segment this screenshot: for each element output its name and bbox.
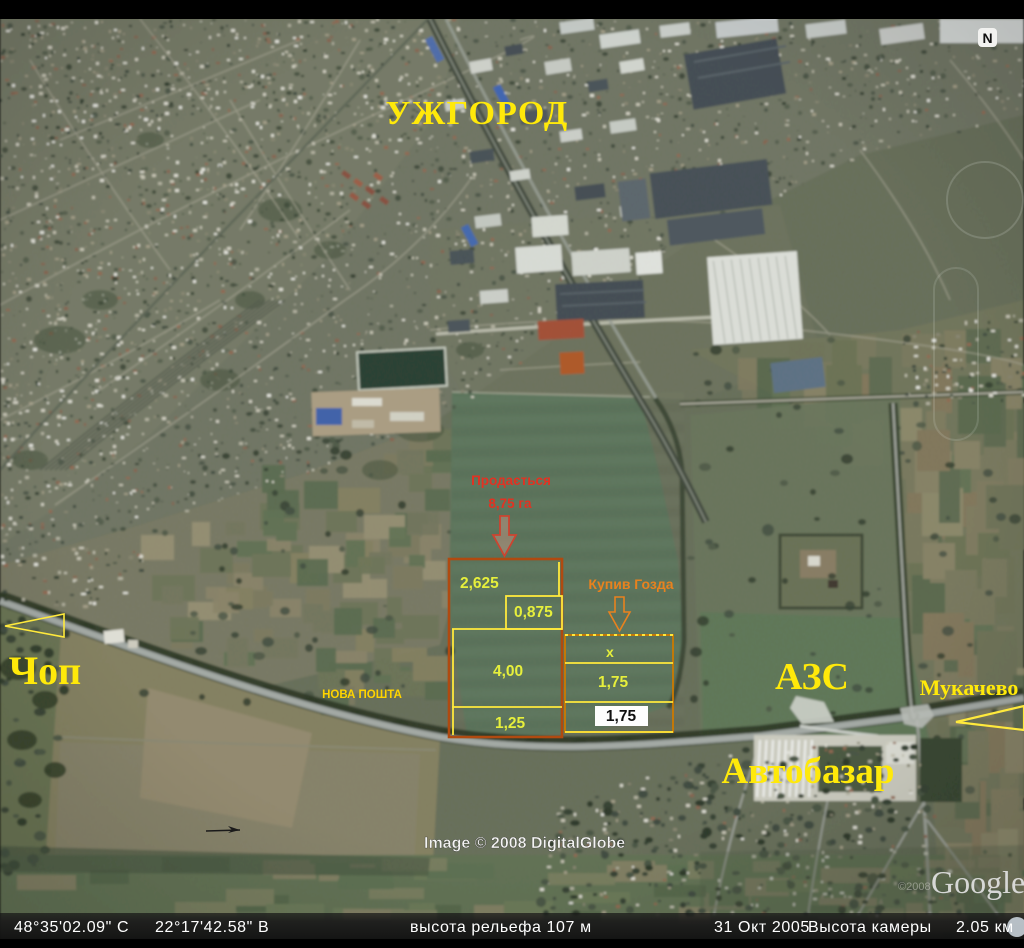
svg-text:48°35'02.09" С: 48°35'02.09" С [14, 919, 129, 936]
svg-text:высота рельефа 107 м: высота рельефа 107 м [410, 919, 592, 936]
svg-text:1,75: 1,75 [598, 674, 629, 691]
svg-text:©2008: ©2008 [898, 881, 931, 893]
svg-text:4,00: 4,00 [493, 663, 523, 680]
svg-text:Чоп: Чоп [9, 648, 81, 693]
svg-text:УЖГОРОД: УЖГОРОД [386, 95, 569, 132]
svg-text:Мукачево: Мукачево [920, 675, 1019, 700]
svg-text:АЗС: АЗС [775, 656, 849, 698]
svg-text:N: N [982, 30, 992, 46]
svg-text:Image © 2008 DigitalGlobe: Image © 2008 DigitalGlobe [424, 835, 625, 852]
svg-text:Высота камеры: Высота камеры [808, 919, 932, 936]
svg-text:2,625: 2,625 [460, 575, 499, 592]
svg-text:22°17'42.58" В: 22°17'42.58" В [155, 919, 269, 936]
svg-text:2.05 км: 2.05 км [956, 919, 1014, 936]
svg-text:x: x [606, 644, 614, 660]
svg-text:Купив Гозда: Купив Гозда [588, 576, 673, 592]
svg-text:8,75 га: 8,75 га [488, 496, 532, 511]
svg-text:1,25: 1,25 [495, 715, 526, 732]
svg-text:НОВА ПОШТА: НОВА ПОШТА [322, 689, 402, 701]
svg-text:Автобазар: Автобазар [722, 751, 895, 792]
svg-text:Продається: Продається [471, 473, 551, 488]
svg-text:1,75: 1,75 [606, 708, 637, 725]
svg-text:0,875: 0,875 [514, 604, 553, 621]
svg-text:31 Окт 2005: 31 Окт 2005 [714, 919, 810, 936]
svg-text:Google: Google [931, 864, 1024, 900]
